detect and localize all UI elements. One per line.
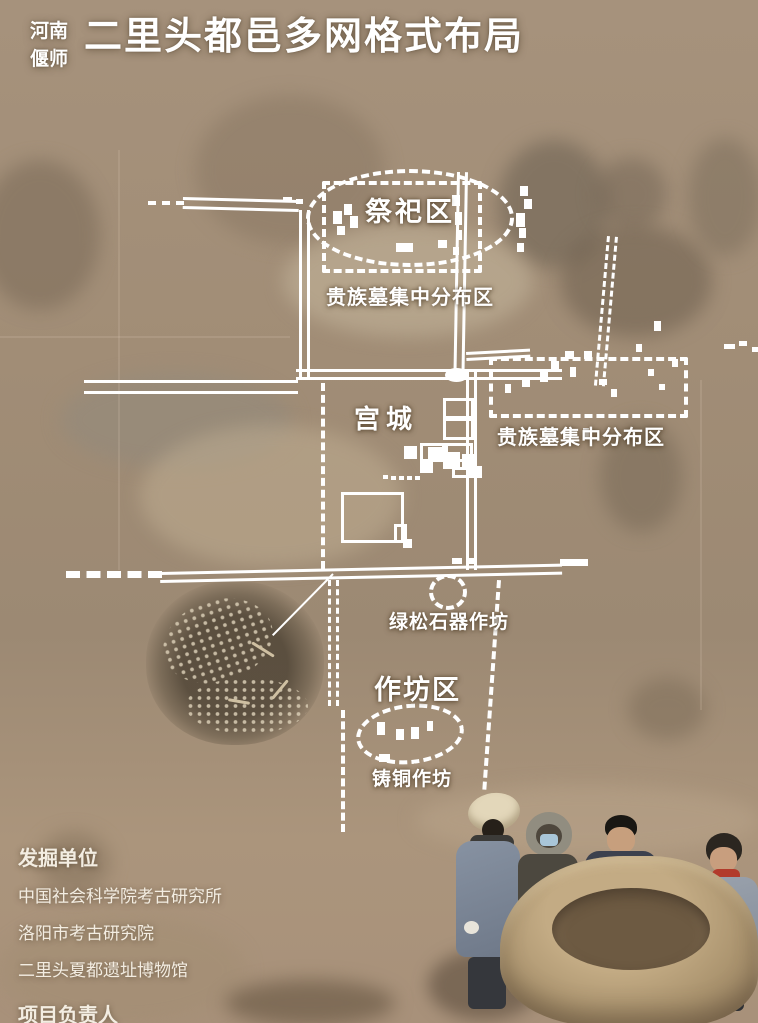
excavation-unit: 二里头夏都遗址博物馆: [18, 956, 222, 981]
site-marker: [283, 197, 292, 202]
site-marker: [456, 230, 462, 240]
site-marker: [453, 247, 459, 255]
site-marker: [344, 204, 352, 215]
excavation-unit: 洛阳市考古研究院: [18, 919, 222, 944]
site-marker: [399, 476, 404, 480]
site-marker: [752, 347, 758, 352]
site-marker: [611, 389, 617, 397]
site-marker: [659, 384, 665, 390]
structure-outline: [443, 398, 474, 419]
site-marker: [584, 351, 592, 359]
structure-outline: [443, 418, 474, 440]
site-marker: [522, 377, 530, 387]
site-marker: [420, 461, 433, 473]
site-marker: [377, 722, 385, 735]
map-label-bronze-workshop: 铸铜作坊: [372, 764, 452, 791]
site-marker: [654, 321, 661, 331]
road-south-vertical-dash: [341, 710, 345, 832]
site-marker: [428, 447, 443, 461]
site-marker: [438, 240, 447, 248]
site-marker: [517, 243, 524, 252]
road-south-vertical: [328, 580, 339, 706]
region-line-1: 河南: [30, 18, 68, 46]
site-marker: [404, 446, 417, 459]
road-west-vertical: [299, 210, 310, 380]
site-marker: [379, 754, 390, 762]
site-marker: [519, 228, 526, 238]
map-label-noble-tombs-left: 贵族墓集中分布区: [326, 281, 494, 310]
zone-turquoise-workshop: [429, 574, 467, 610]
site-marker: [396, 729, 404, 740]
infographic-poster: 祭祀区贵族墓集中分布区宫城贵族墓集中分布区绿松石器作坊作坊区铸铜作坊 河南 偃师…: [0, 0, 758, 1023]
site-marker: [415, 476, 420, 480]
site-marker: [350, 216, 358, 228]
map-label-palace-city: 宫城: [354, 399, 418, 436]
zone-bronze-workshop: [353, 699, 467, 770]
site-marker: [396, 243, 413, 252]
site-marker: [337, 226, 345, 235]
site-marker: [636, 344, 642, 352]
map-label-sacrificial-zone: 祭祀区: [365, 190, 455, 229]
site-marker: [411, 727, 419, 739]
site-marker: [739, 341, 747, 346]
road-south-ew-dash-west: [66, 571, 162, 578]
site-marker: [296, 199, 303, 204]
map-label-noble-tombs-right: 贵族墓集中分布区: [497, 421, 665, 450]
structure-outline: [452, 467, 477, 478]
road-south-ew-dash-east: [560, 559, 588, 566]
road-south-ew-road: [160, 564, 562, 583]
site-marker: [455, 212, 462, 225]
site-marker: [466, 558, 474, 564]
site-marker: [452, 558, 462, 564]
project-leader-heading: 项目负责人: [18, 999, 222, 1023]
site-marker: [391, 476, 396, 480]
excavation-unit: 中国社会科学院考古研究所: [18, 882, 222, 907]
map-label-workshop-zone: 作坊区: [374, 668, 461, 707]
site-marker: [520, 186, 528, 196]
map-label-turquoise-workshop: 绿松石器作坊: [389, 607, 509, 634]
region-line-2: 偃师: [30, 46, 68, 74]
header: 河南 偃师 二里头都邑多网格式布局: [30, 14, 524, 73]
leader-line: [272, 573, 333, 635]
site-marker: [565, 351, 574, 359]
site-marker: [427, 721, 433, 731]
site-marker: [672, 359, 678, 367]
site-marker: [505, 384, 511, 393]
page-title: 二里头都邑多网格式布局: [84, 14, 524, 60]
site-marker: [445, 368, 468, 382]
road-north-road: [183, 197, 299, 212]
region-label: 河南 偃师: [30, 14, 68, 73]
road-palace-west-wall: [321, 383, 325, 569]
road-nw-approach: [148, 201, 184, 205]
site-marker: [551, 361, 559, 372]
site-marker: [570, 367, 576, 377]
site-marker: [599, 379, 607, 385]
site-marker: [648, 369, 654, 376]
site-marker: [383, 475, 388, 479]
site-marker: [524, 199, 532, 209]
site-marker: [724, 344, 735, 349]
site-marker: [333, 211, 342, 224]
site-marker: [403, 539, 412, 548]
road-main-ew-west: [84, 380, 298, 394]
excavation-units-heading: 发掘单位: [18, 842, 222, 871]
site-marker: [540, 369, 548, 382]
site-marker: [407, 476, 412, 480]
credits: 发掘单位 中国社会科学院考古研究所 洛阳市考古研究院 二里头夏都遗址博物馆 项目…: [18, 842, 222, 1023]
site-marker: [516, 213, 525, 227]
